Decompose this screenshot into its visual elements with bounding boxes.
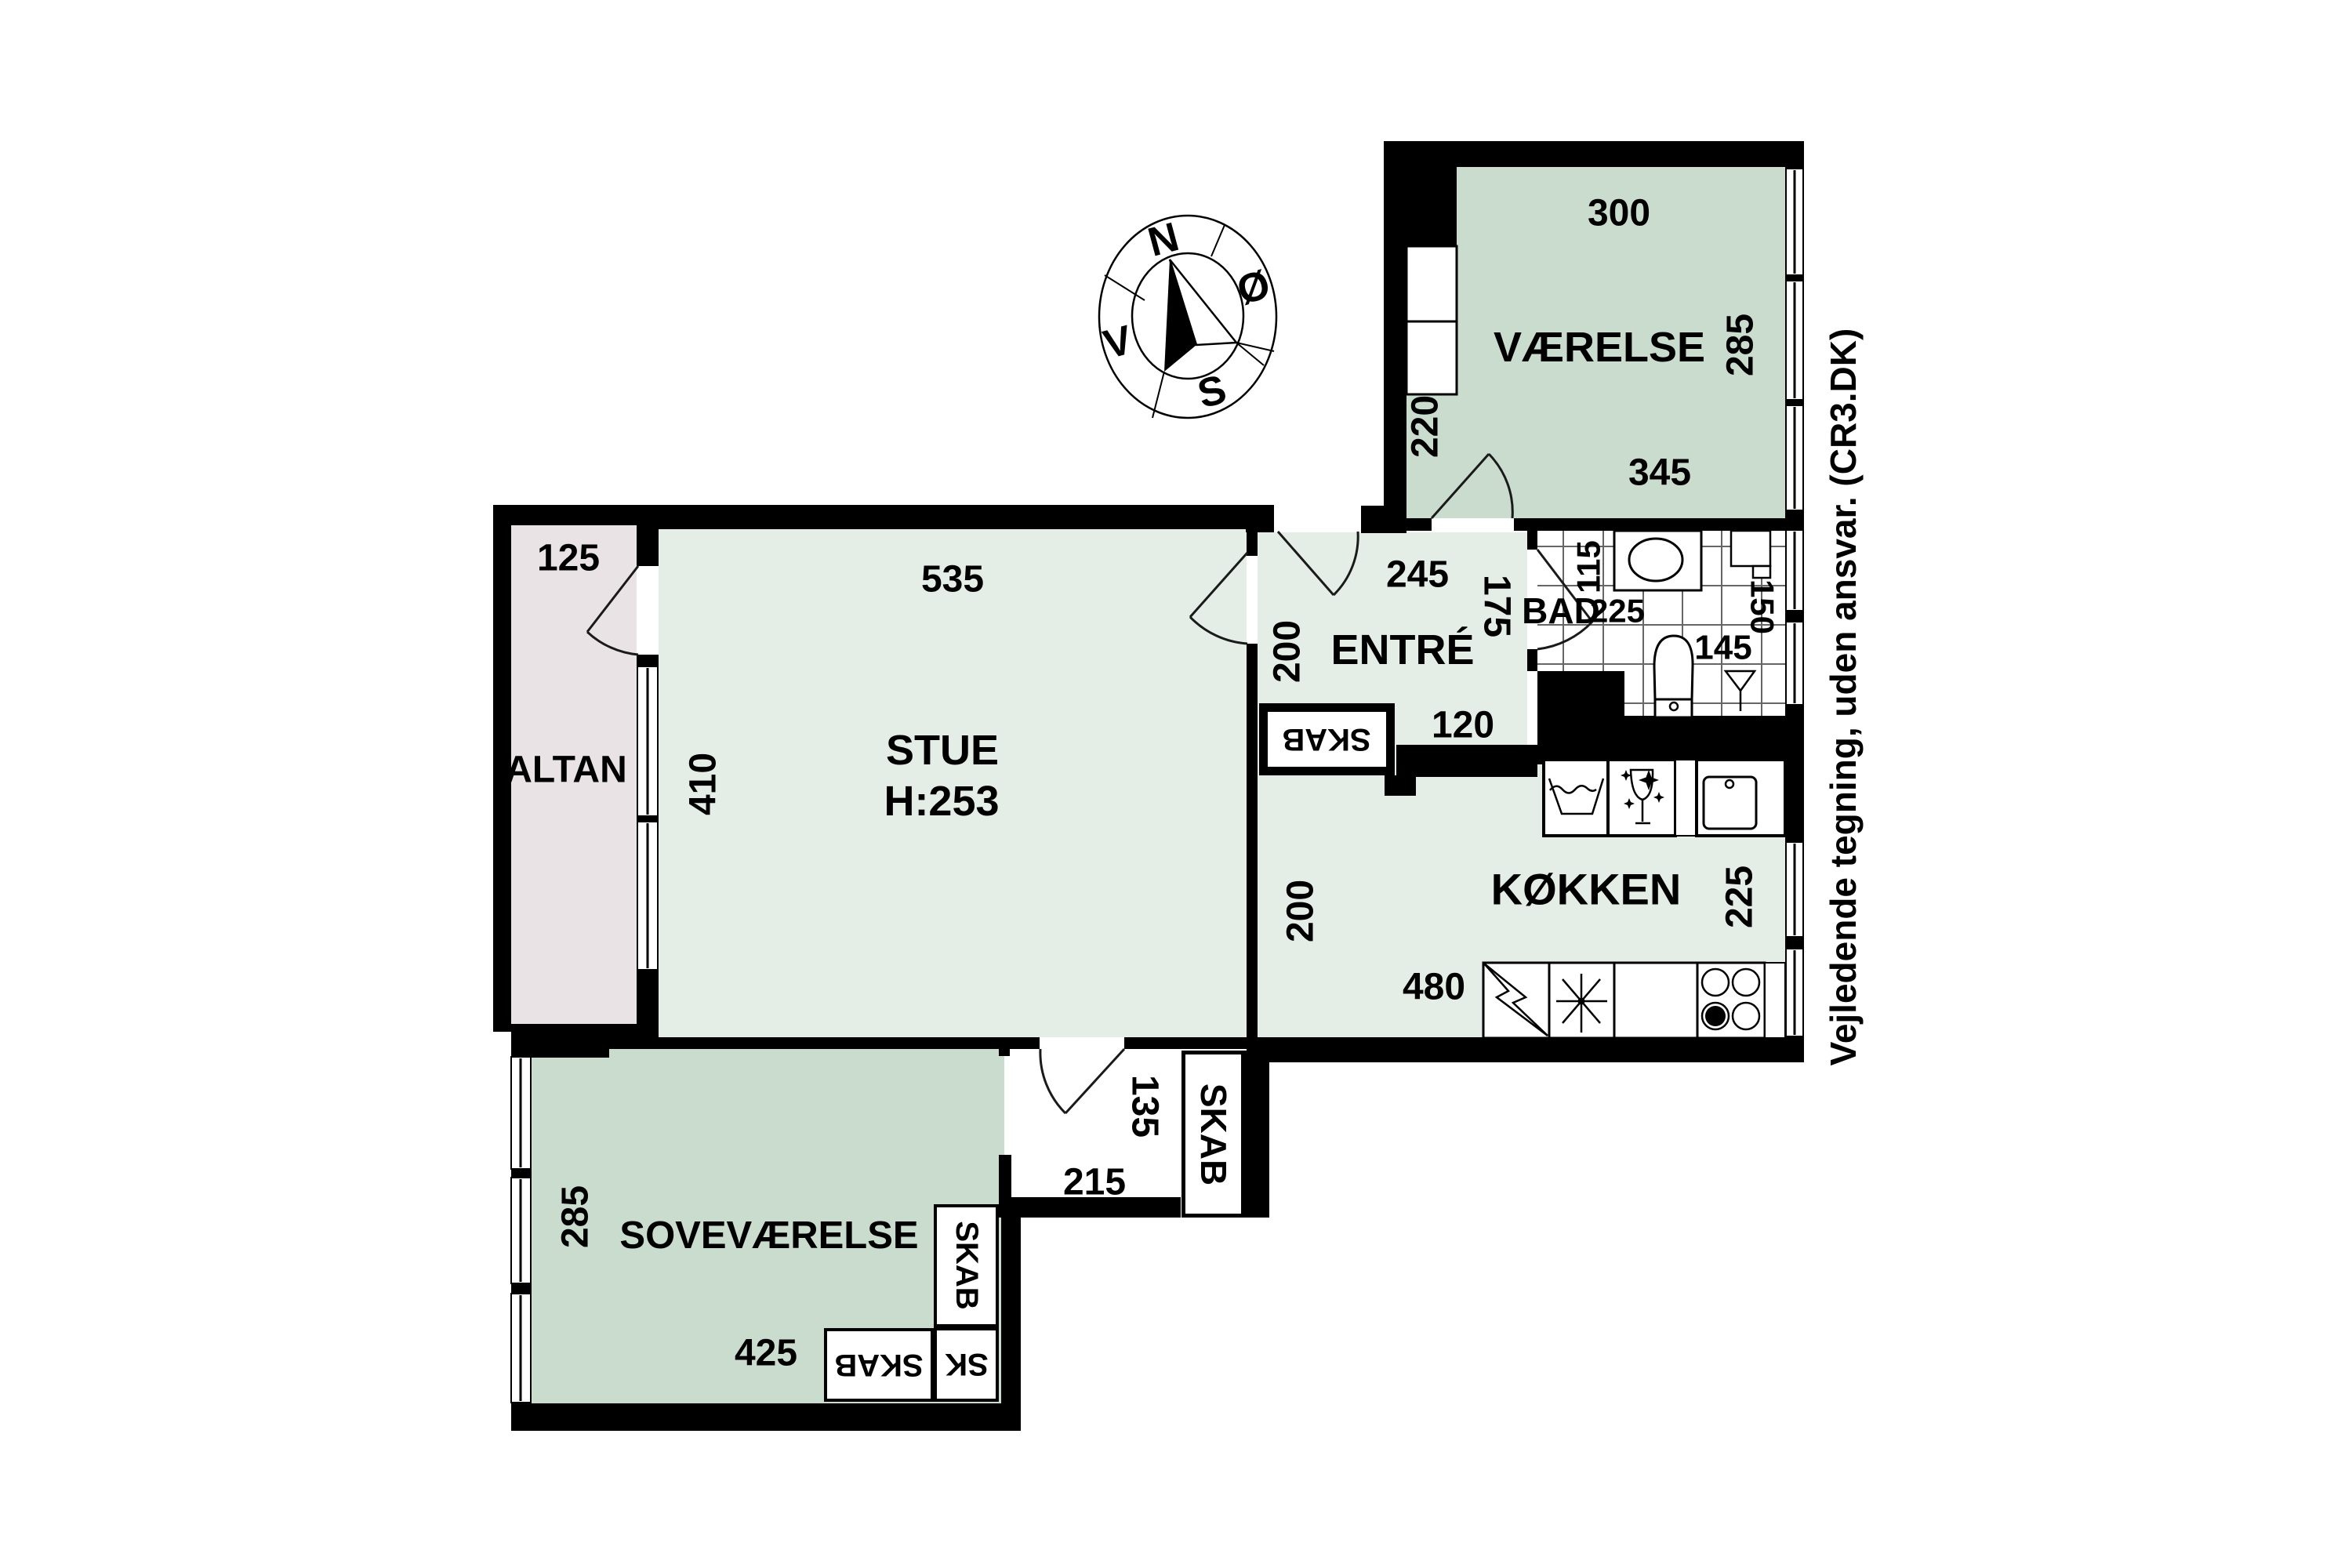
svg-text:225: 225 <box>1719 866 1761 928</box>
svg-text:175: 175 <box>1476 575 1518 637</box>
svg-text:STUE: STUE <box>886 727 999 774</box>
svg-text:535: 535 <box>921 559 984 601</box>
svg-text:480: 480 <box>1403 967 1465 1008</box>
svg-text:VÆRELSE: VÆRELSE <box>1494 324 1705 371</box>
svg-text:Vejledende tegning, uden ansva: Vejledende tegning, uden ansvar. (CR3.DK… <box>1823 328 1864 1066</box>
svg-text:200: 200 <box>1267 620 1308 683</box>
svg-text:200: 200 <box>1280 880 1322 942</box>
svg-text:SK: SK <box>945 1347 989 1381</box>
svg-text:410: 410 <box>683 753 724 815</box>
svg-text:150: 150 <box>1744 579 1781 634</box>
svg-text:ENTRÉ: ENTRÉ <box>1330 626 1474 673</box>
svg-text:H:253: H:253 <box>884 778 999 825</box>
svg-text:425: 425 <box>735 1333 797 1374</box>
svg-text:245: 245 <box>1386 554 1449 596</box>
svg-text:BAD: BAD <box>1522 590 1600 631</box>
svg-text:SOVEVÆRELSE: SOVEVÆRELSE <box>619 1214 918 1257</box>
svg-text:SKAB: SKAB <box>1282 722 1370 757</box>
svg-text:KØKKEN: KØKKEN <box>1491 865 1682 914</box>
svg-text:345: 345 <box>1628 452 1691 494</box>
svg-text:120: 120 <box>1432 705 1494 746</box>
svg-text:SKAB: SKAB <box>949 1221 984 1309</box>
svg-text:115: 115 <box>1570 540 1607 593</box>
svg-text:SKAB: SKAB <box>834 1348 923 1382</box>
svg-text:125: 125 <box>537 538 600 579</box>
svg-text:300: 300 <box>1588 193 1650 234</box>
svg-text:215: 215 <box>1063 1162 1126 1203</box>
svg-text:220: 220 <box>1405 395 1446 458</box>
svg-text:285: 285 <box>555 1185 597 1248</box>
svg-text:145: 145 <box>1694 629 1751 667</box>
svg-text:ALTAN: ALTAN <box>505 750 627 791</box>
svg-text:SKAB: SKAB <box>1193 1083 1234 1185</box>
svg-text:135: 135 <box>1124 1075 1166 1138</box>
svg-text:225: 225 <box>1590 593 1645 630</box>
svg-text:285: 285 <box>1720 314 1762 376</box>
